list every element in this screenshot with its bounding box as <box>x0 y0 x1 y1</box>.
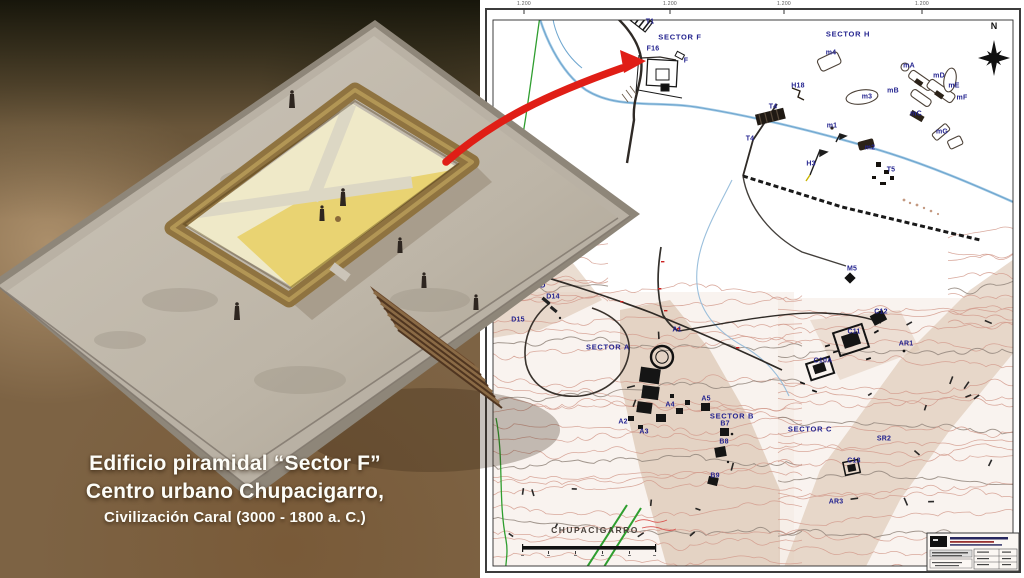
map-label: D14 <box>546 294 559 301</box>
map-label: SECTOR F <box>658 33 701 41</box>
map-label: C10A <box>814 358 833 365</box>
map-label: mE <box>948 83 959 90</box>
map-labels: T1SECTOR FF16FSECTOR Hm4mAmDmBmEmFm3mCH1… <box>480 0 1024 578</box>
map-label: T5 <box>887 167 896 174</box>
caption-title: Edificio piramidal “Sector F” <box>20 450 450 478</box>
map-label: mB <box>887 88 899 95</box>
map-label: C13 <box>847 458 860 465</box>
enclosure-walls <box>172 90 472 300</box>
caption: Edificio piramidal “Sector F” Centro urb… <box>20 450 450 528</box>
map-label: AR1 <box>899 341 914 348</box>
caption-subtitle: Centro urbano Chupacigarro, <box>20 478 450 506</box>
enclosure-floor-yellow <box>237 170 452 288</box>
caption-civilization: Civilización Caral (3000 - 1800 a. C.) <box>20 507 450 528</box>
slide: T1SECTOR FF16FSECTOR Hm4mAmDmBmEmFm3mCH1… <box>0 0 1024 578</box>
map-label: D15 <box>511 317 524 324</box>
map-label: A1 <box>672 327 681 334</box>
map-label: SR2 <box>877 436 891 443</box>
map-label: SECTOR A <box>586 343 630 351</box>
map-label: AR3 <box>829 499 844 506</box>
map-label: mF <box>957 95 968 102</box>
map-label: mD <box>933 73 945 80</box>
map-label: M5 <box>847 266 857 273</box>
reconstruction-render: Edificio piramidal “Sector F” Centro urb… <box>0 0 480 578</box>
map-label: B8 <box>719 439 728 446</box>
map-label: B7 <box>720 421 729 428</box>
map-label: A2 <box>618 419 627 426</box>
human-figures <box>234 90 479 320</box>
map-label: m4 <box>826 50 837 57</box>
enclosure-walkway <box>198 104 412 212</box>
map-label: m1 <box>827 123 838 130</box>
map-label: T4 <box>769 104 778 111</box>
site-map: T1SECTOR FF16FSECTOR Hm4mAmDmBmEmFm3mCH1… <box>480 0 1024 578</box>
map-label: F <box>684 58 688 65</box>
map-label: SECTOR H <box>826 30 870 38</box>
compass-north-label: N <box>991 21 998 31</box>
map-label: H3 <box>806 161 815 168</box>
coordinate-tick: 1.200 <box>517 1 531 7</box>
map-label: mG <box>936 129 948 136</box>
coordinate-tick: 1.200 <box>777 1 791 7</box>
map-label: m2 <box>865 145 876 152</box>
map-label: A3 <box>639 429 648 436</box>
map-label: T1 <box>646 19 655 26</box>
map-label: T4 <box>746 136 755 143</box>
map-label: SECTOR B <box>710 412 754 420</box>
map-label: mC <box>910 111 922 118</box>
map-label: C12 <box>874 309 887 316</box>
coordinate-tick: 1.200 <box>663 1 677 7</box>
coordinate-tick: 1.200 <box>915 1 929 7</box>
map-label: B9 <box>710 473 719 480</box>
map-label: A4 <box>665 402 674 409</box>
map-label: A5 <box>701 396 710 403</box>
map-label: H18 <box>791 83 804 90</box>
map-label: m3 <box>862 94 873 101</box>
map-label: SECTOR C <box>788 425 832 433</box>
site-name-label: CHUPACIGARRO <box>551 525 639 535</box>
enclosure-floor <box>186 104 455 286</box>
map-label: mA <box>903 63 915 70</box>
map-label: SECTOR D <box>502 281 546 289</box>
map-label: C11 <box>847 329 860 336</box>
map-label: F16 <box>647 46 660 53</box>
